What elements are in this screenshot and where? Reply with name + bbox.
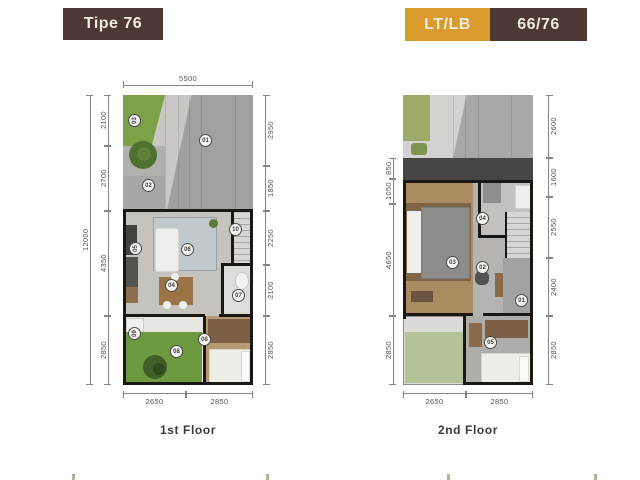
interior-wall — [123, 314, 205, 317]
room-marker-porch: 02 — [142, 179, 155, 192]
dim-left-seg: 1050 — [384, 179, 394, 204]
dim-right-seg: 2100 — [265, 265, 275, 316]
ltlb-label-badge: LT/LB — [405, 8, 490, 41]
bed-blanket — [421, 207, 470, 279]
floor2-caption: 2nd Floor — [403, 423, 533, 437]
roof-joint — [511, 95, 512, 158]
dim-right-seg: 2850 — [548, 316, 558, 385]
roof-joint — [453, 95, 454, 158]
exterior-wall — [123, 209, 126, 385]
driveway-joint — [201, 95, 202, 211]
dim-right-seg: 2250 — [265, 211, 275, 265]
room-marker-workspace: 02 — [476, 261, 489, 274]
bedroom-bench — [411, 291, 433, 302]
dim-bottom-seg: 2650 — [403, 393, 466, 407]
bed-pillow — [241, 351, 250, 382]
dim-right-seg: 1600 — [548, 158, 558, 197]
floor1-plan — [123, 95, 253, 385]
room-marker-stairs: 10 — [229, 223, 242, 236]
roof-garden-strip — [403, 95, 430, 141]
driveway-joint — [178, 95, 179, 211]
dim-bottom-seg: 2850 — [186, 393, 253, 407]
driveway-joint — [189, 95, 190, 211]
balcony-plant — [411, 143, 427, 155]
interior-wall — [483, 313, 533, 316]
dining-chair — [179, 301, 187, 309]
exterior-wall — [403, 180, 406, 319]
driveway-joint — [235, 95, 236, 211]
dim-right-seg: 2850 — [265, 316, 275, 385]
type-badge: Tipe 76 — [63, 8, 163, 40]
kitchen-counter — [126, 257, 138, 287]
exterior-wall — [123, 209, 253, 212]
room-marker-bedroom2: 05 — [484, 336, 497, 349]
bed-pillows — [407, 211, 421, 273]
bath-wall — [221, 263, 224, 314]
dim-overall-height: 12000 — [81, 95, 91, 385]
stair2-wall — [505, 212, 507, 258]
sofa — [155, 228, 179, 272]
room-marker-bedroom: 08 — [198, 333, 211, 346]
room-marker-dining: 04 — [165, 279, 178, 292]
dim-left-seg: 4650 — [384, 204, 394, 316]
dim-right-seg: 2400 — [548, 258, 558, 316]
room-marker-bathroom2: 04 — [476, 212, 489, 225]
shrub-plant-highlight — [137, 147, 151, 161]
indoor-plant — [209, 219, 218, 228]
garden-tree-core — [153, 363, 165, 375]
exterior-wall — [250, 209, 253, 385]
stair-wall — [231, 211, 234, 269]
interior-wall — [219, 314, 253, 317]
roof-eave-band — [403, 158, 533, 182]
stair-landing — [503, 258, 533, 316]
floor1-caption: 1st Floor — [123, 423, 253, 437]
dim-right-seg: 2950 — [265, 95, 275, 166]
bottom-edge-tick — [594, 474, 597, 480]
room-marker-carport: 01 — [199, 134, 212, 147]
room-marker-bathroom: 07 — [232, 289, 245, 302]
void-garden — [405, 332, 464, 383]
bedroom2-cabinet — [469, 323, 482, 347]
bed2-pillow — [519, 356, 529, 382]
shower — [483, 183, 501, 203]
room-marker-kitchen: 05 — [129, 242, 142, 255]
dim-top-width: 5500 — [123, 76, 253, 86]
dining-chair — [163, 301, 171, 309]
room-marker-front-yard: 03 — [128, 114, 141, 127]
dim-bottom-seg: 2850 — [466, 393, 533, 407]
exterior-wall — [403, 180, 533, 183]
floorplan-sheet: Tipe 76 LT/LB 66/76 — [0, 0, 640, 480]
floor2-plan — [403, 95, 533, 385]
roof-joint — [478, 95, 479, 158]
exterior-wall — [463, 382, 533, 385]
dim-left-seg: 850 — [384, 158, 394, 179]
dim-left-seg: 2700 — [99, 146, 109, 211]
exterior-wall — [123, 382, 253, 385]
dim-left-seg: 2100 — [99, 95, 109, 146]
kitchen-cabinet — [126, 287, 138, 303]
dim-right-seg: 2550 — [548, 197, 558, 258]
dim-bottom-seg: 2650 — [123, 393, 186, 407]
dim-left-seg: 2850 — [384, 316, 394, 385]
ltlb-value-badge: 66/76 — [490, 8, 587, 41]
bottom-edge-tick — [72, 474, 75, 480]
room-marker-laundry: 09 — [128, 327, 141, 340]
room-marker-hall-stairs: 01 — [515, 294, 528, 307]
room-marker-garden: 08 — [170, 345, 183, 358]
interior-wall — [203, 316, 206, 382]
bedroom-wardrobe — [208, 319, 250, 343]
carport-edge-line — [165, 95, 166, 211]
bottom-edge-tick — [266, 474, 269, 480]
dim-right-seg: 2600 — [548, 95, 558, 158]
room-marker-living: 06 — [181, 243, 194, 256]
roof-joint — [465, 95, 466, 158]
exterior-wall — [530, 180, 533, 385]
dim-right-seg: 1850 — [265, 166, 275, 211]
interior-wall — [463, 316, 466, 385]
dim-left-seg: 2850 — [99, 316, 109, 385]
toilet — [235, 272, 249, 290]
bath-wall — [221, 263, 250, 266]
dim-left-seg: 4350 — [99, 211, 109, 316]
bottom-edge-tick — [447, 474, 450, 480]
room-marker-master-bedroom: 03 — [446, 256, 459, 269]
bath2-wall — [478, 182, 481, 238]
